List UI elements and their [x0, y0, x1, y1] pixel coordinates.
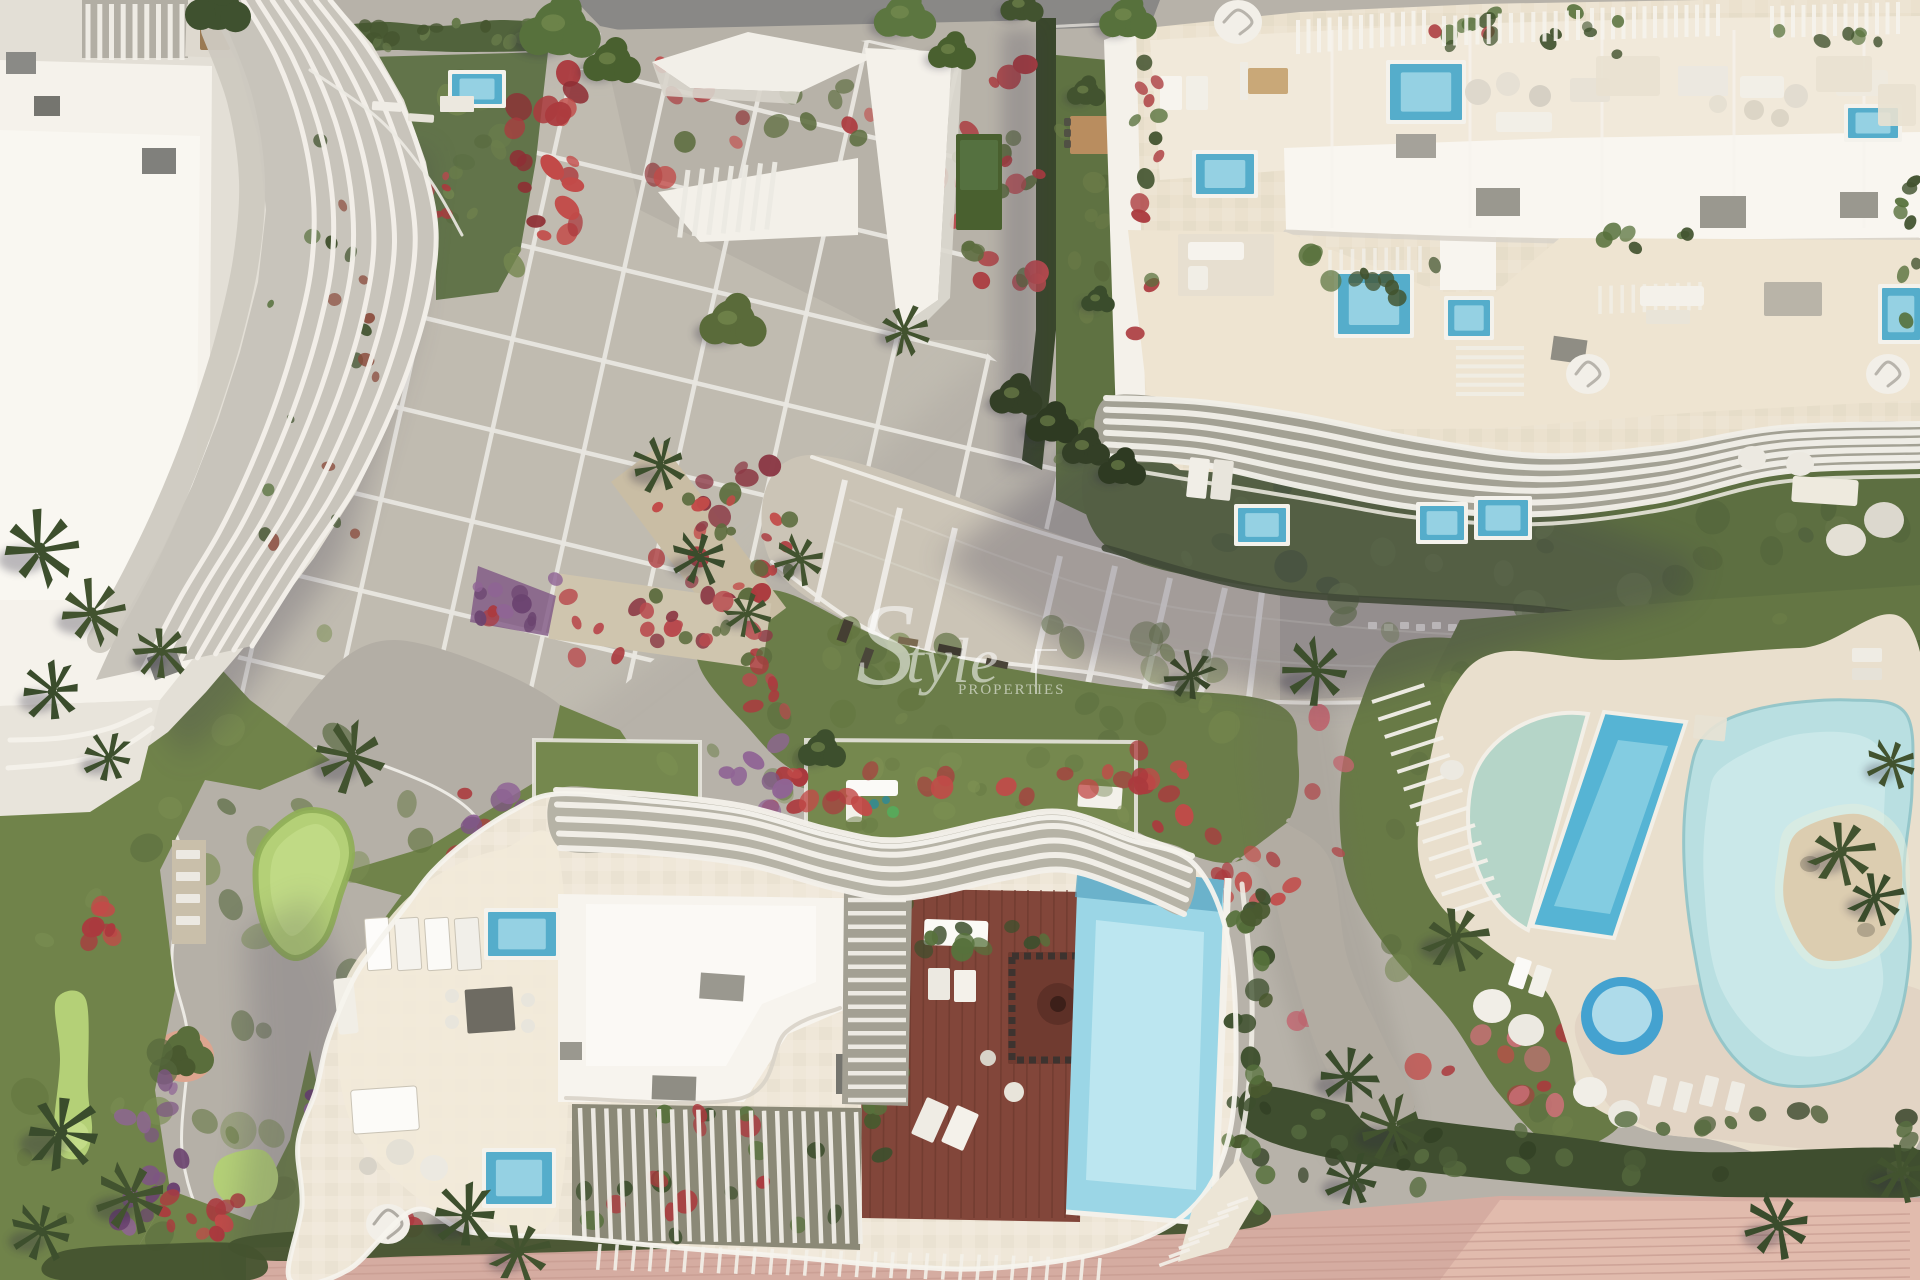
svg-text:PROPERTIES: PROPERTIES	[958, 682, 1065, 698]
